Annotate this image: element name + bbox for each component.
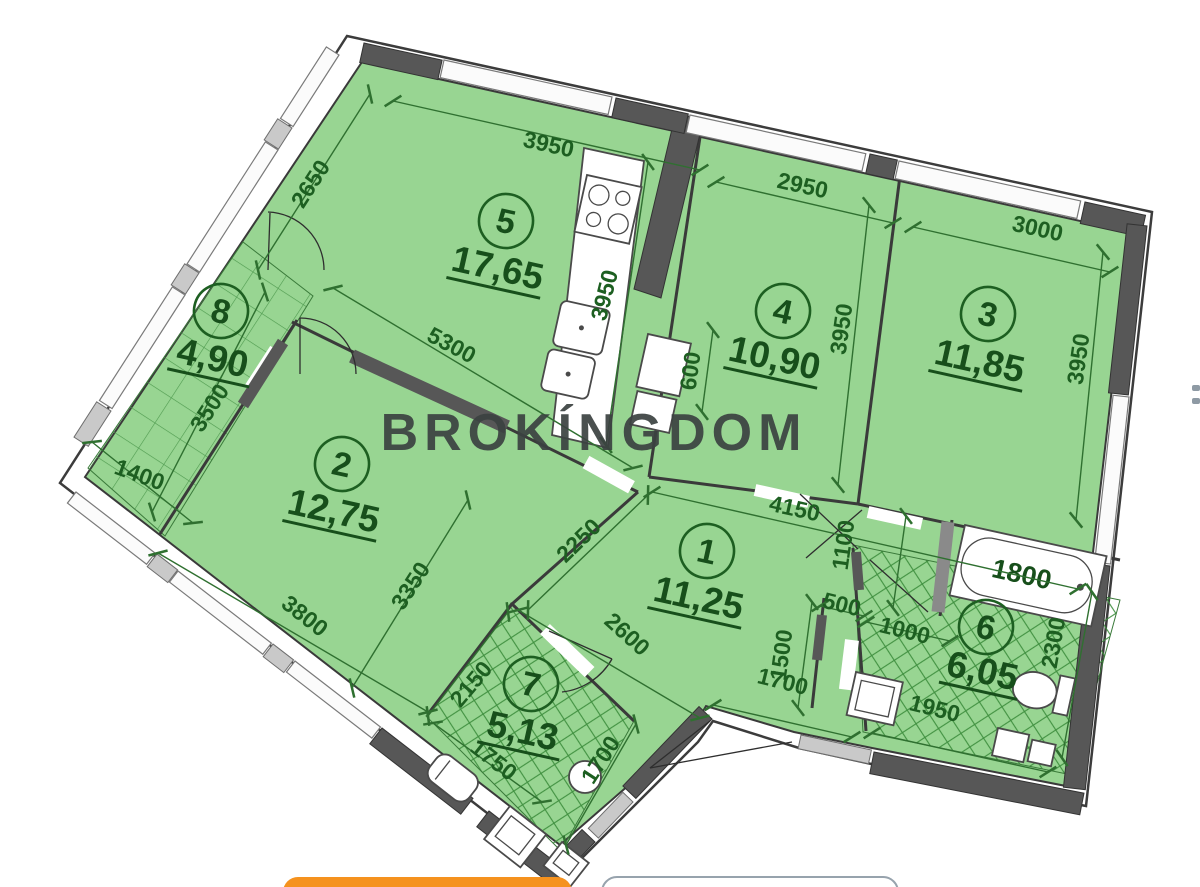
washing-machine-icon — [847, 672, 903, 725]
watermark: BROKÍNGDOM — [381, 404, 808, 462]
primary-action-button[interactable] — [283, 877, 572, 887]
floor-plan-screen: 1800 — [0, 0, 1200, 887]
bottom-action-bar — [283, 877, 898, 887]
edge-artifact — [1192, 385, 1200, 404]
secondary-action-button[interactable] — [602, 877, 898, 887]
stove-icon — [574, 175, 641, 244]
dim-room4-niche: 600 — [675, 350, 706, 392]
floor-plan: 1800 — [0, 0, 1200, 887]
